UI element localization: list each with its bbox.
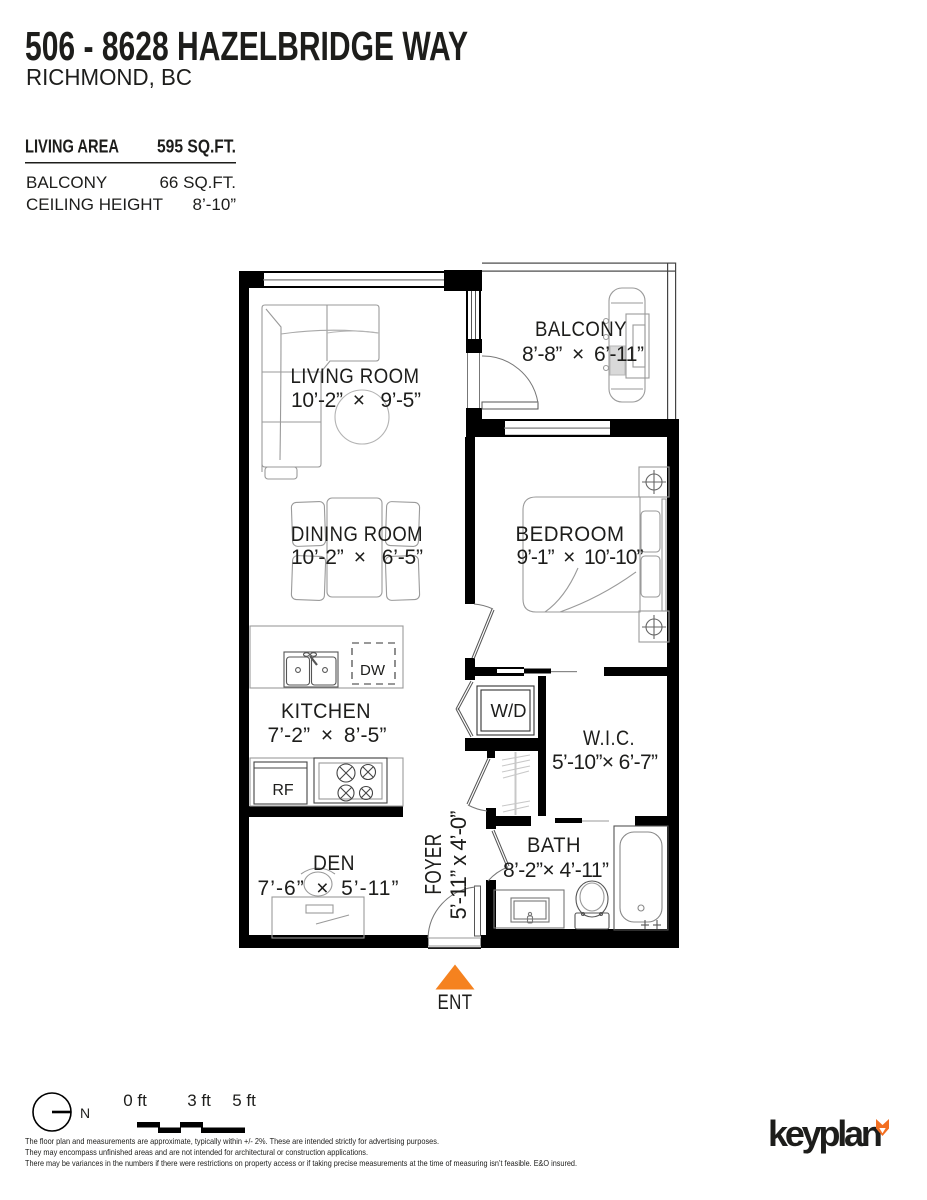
svg-text:506 - 8628 HAZELBRIDGE WAY: 506 - 8628 HAZELBRIDGE WAY xyxy=(25,23,468,69)
svg-text:ENT: ENT xyxy=(438,991,473,1014)
svg-text:DEN: DEN xyxy=(313,852,355,875)
svg-text:BEDROOM: BEDROOM xyxy=(516,523,625,546)
svg-text:RICHMOND, BC: RICHMOND, BC xyxy=(26,64,192,90)
svg-text:5’-10”× 6’-7”: 5’-10”× 6’-7” xyxy=(552,751,658,774)
svg-text:W.I.C.: W.I.C. xyxy=(583,727,635,750)
svg-text:8’-8” × 6’-11”: 8’-8” × 6’-11” xyxy=(522,343,644,366)
svg-text:7’-2” × 8’-5”: 7’-2” × 8’-5” xyxy=(268,724,387,747)
svg-text:8’-10”: 8’-10” xyxy=(193,195,237,214)
svg-text:BATH: BATH xyxy=(527,834,581,857)
svg-text:0 ft: 0 ft xyxy=(123,1091,147,1110)
svg-text:RF: RF xyxy=(272,782,294,799)
svg-text:3 ft: 3 ft xyxy=(187,1091,211,1110)
svg-text:LIVING AREA: LIVING AREA xyxy=(25,137,119,157)
svg-text:10’-2” × 9’-5”: 10’-2” × 9’-5” xyxy=(291,389,421,412)
svg-text:FOYER: FOYER xyxy=(420,834,446,895)
svg-text:7’-6” × 5’-11”: 7’-6” × 5’-11” xyxy=(258,877,399,900)
svg-text:BALCONY: BALCONY xyxy=(26,173,107,192)
svg-text:KITCHEN: KITCHEN xyxy=(281,700,371,723)
svg-text:They may encompass unfinished: They may encompass unfinished areas and … xyxy=(25,1147,368,1157)
svg-text:595 SQ.FT.: 595 SQ.FT. xyxy=(157,137,236,157)
svg-text:5’-11” x 4’-0”: 5’-11” x 4’-0” xyxy=(446,811,471,920)
svg-text:8’-2”× 4’-11”: 8’-2”× 4’-11” xyxy=(503,859,609,882)
svg-text:N: N xyxy=(80,1105,90,1121)
svg-text:CEILING HEIGHT: CEILING HEIGHT xyxy=(26,195,163,214)
svg-text:5 ft: 5 ft xyxy=(232,1091,256,1110)
svg-text:The floor plan and measurement: The floor plan and measurements are appr… xyxy=(25,1136,439,1146)
svg-text:W/D: W/D xyxy=(491,701,527,721)
svg-text:BALCONY: BALCONY xyxy=(535,318,627,341)
svg-text:DINING ROOM: DINING ROOM xyxy=(291,523,423,546)
svg-text:66 SQ.FT.: 66 SQ.FT. xyxy=(159,173,236,192)
svg-text:9’-1” × 10’-10”: 9’-1” × 10’-10” xyxy=(517,546,644,569)
svg-text:There may be variances in the: There may be variances in the numbers if… xyxy=(25,1158,577,1168)
svg-text:LIVING ROOM: LIVING ROOM xyxy=(291,365,420,388)
svg-text:10’-2” × 6’-5”: 10’-2” × 6’-5” xyxy=(291,546,423,569)
svg-text:keyplan: keyplan xyxy=(768,1113,881,1154)
svg-text:DW: DW xyxy=(360,662,386,679)
